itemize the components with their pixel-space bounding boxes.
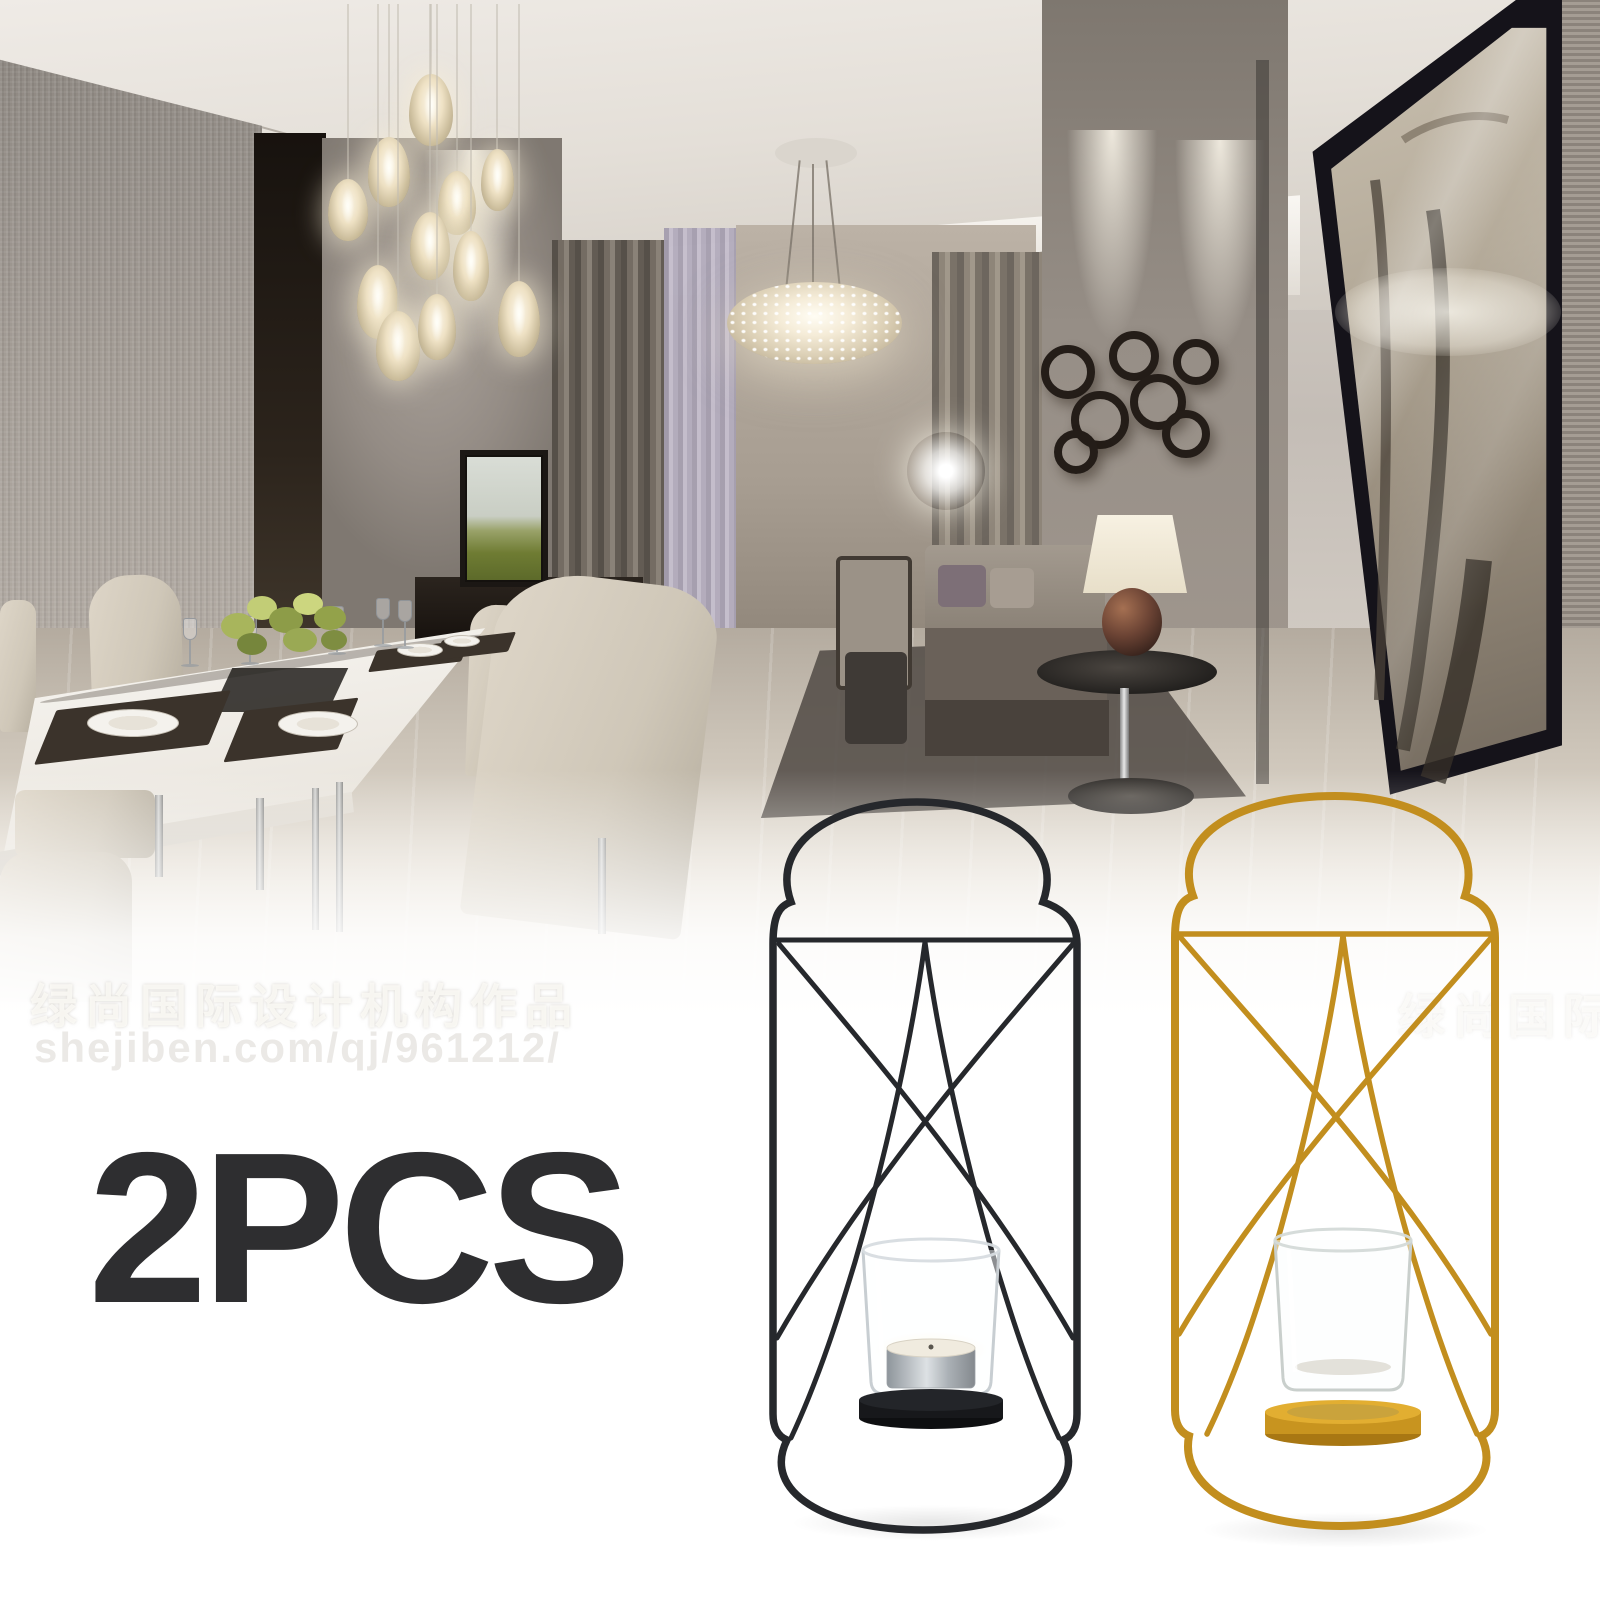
dining-chair (0, 600, 36, 732)
chandelier-canopy (775, 138, 857, 168)
watermark-url: shejiben.com/qj/961212/ (34, 1024, 561, 1072)
dinner-plate (444, 635, 480, 647)
table-lamp-body (1102, 588, 1162, 656)
centerpiece-foliage (283, 628, 317, 652)
candle-sconce-gold (1152, 782, 1512, 1542)
wine-glass-stem (404, 622, 406, 646)
throw-pillow (990, 568, 1034, 608)
wall-corner-shadow (1256, 60, 1269, 784)
tealight-wick (929, 1345, 934, 1350)
wine-glass-bowl (398, 600, 412, 622)
centerpiece-foliage (321, 630, 347, 650)
wine-glass-stem (382, 620, 384, 644)
wall-ring-decor (1173, 339, 1219, 385)
wine-glass-stem (189, 640, 191, 664)
table-lamp-shade (1083, 515, 1187, 593)
chandelier-cable (812, 164, 814, 286)
pendant-cable (470, 4, 472, 231)
wine-glass-foot (241, 662, 259, 665)
wine-glass-foot (181, 664, 199, 667)
sputnik-lamp (907, 432, 985, 510)
wine-glass-bowl (183, 618, 197, 640)
wall-ring-decor (1054, 430, 1098, 474)
pendant-cable (388, 4, 390, 137)
wall-ring-decor (1162, 410, 1210, 458)
wine-glass-foot (328, 652, 346, 655)
wall-ring-decor (1109, 331, 1159, 381)
base-disc-top (859, 1389, 1003, 1411)
dinner-plate (278, 711, 358, 737)
pendant-cable (347, 4, 349, 179)
wall-tv (460, 450, 548, 587)
base-disc-inner (1287, 1404, 1399, 1420)
pendant-cable (436, 4, 438, 294)
centerpiece-foliage (314, 606, 346, 630)
wall-ring-decor (1041, 345, 1095, 399)
pendant-cable (518, 4, 520, 281)
chaise (845, 652, 907, 744)
pendant-cable (429, 4, 431, 212)
centerpiece-foliage (237, 633, 267, 655)
pendant-cable (397, 4, 399, 311)
throw-pillow (938, 565, 986, 607)
pendant-light (328, 179, 368, 241)
product-listing-image: 绿尚国际设计机构作品 shejiben.com/qj/961212/ 绿尚国际设… (0, 0, 1600, 1600)
pendant-light (481, 149, 514, 211)
quantity-label: 2PCS (88, 1120, 626, 1335)
crystal-chandelier (727, 282, 902, 364)
pendant-cable (496, 4, 498, 149)
candle-sconce-black (735, 790, 1095, 1540)
glass-bottom (1295, 1359, 1391, 1375)
crystal-texture (727, 282, 902, 364)
tv-screen (467, 457, 541, 580)
wine-glass-foot (374, 644, 392, 647)
pendant-cable (456, 4, 458, 171)
sofa-base (925, 700, 1109, 756)
wine-glass-bowl (376, 598, 390, 620)
pendant-cable (377, 4, 379, 265)
dinner-plate (87, 709, 179, 737)
wine-glass-foot (396, 646, 414, 649)
